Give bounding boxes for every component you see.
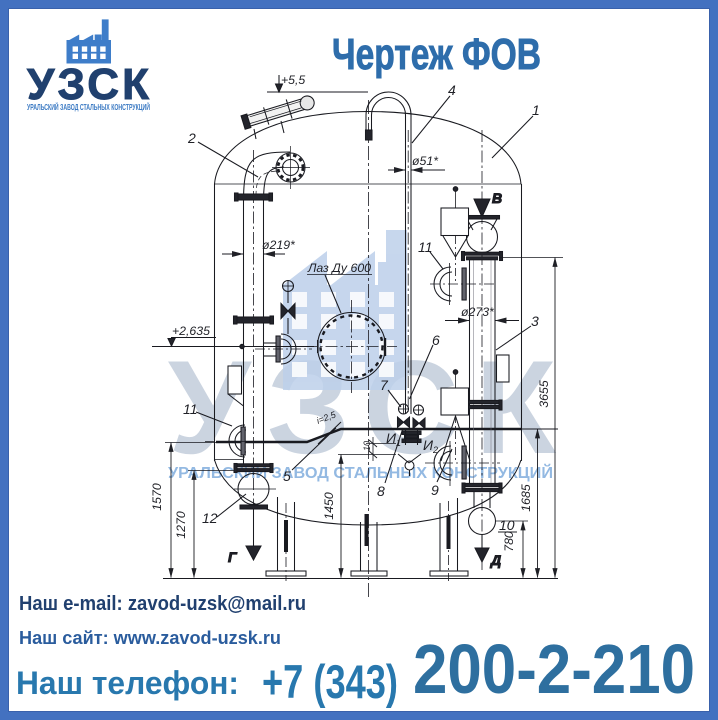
svg-text:9: 9 xyxy=(431,482,439,498)
svg-text:200-2-210: 200-2-210 xyxy=(413,630,695,708)
svg-text:10: 10 xyxy=(362,441,372,451)
svg-text:ø273*: ø273* xyxy=(461,305,495,319)
svg-text:Наш e-mail: zavod-uzsk@mail.ru: Наш e-mail: zavod-uzsk@mail.ru xyxy=(19,593,306,615)
svg-text:7: 7 xyxy=(380,377,389,393)
svg-text:1: 1 xyxy=(532,102,540,118)
svg-text:Д: Д xyxy=(490,552,501,568)
svg-text:1685: 1685 xyxy=(519,484,533,512)
svg-text:УРАЛЬСКИЙ ЗАВОД СТАЛЬНЫХ КОНСТ: УРАЛЬСКИЙ ЗАВОД СТАЛЬНЫХ КОНСТРУКЦИЙ xyxy=(27,101,150,112)
svg-text:ø51*: ø51* xyxy=(412,154,439,168)
svg-text:Г: Г xyxy=(228,549,238,565)
svg-text:3655: 3655 xyxy=(537,380,551,408)
svg-text:6: 6 xyxy=(432,332,440,348)
svg-text:8: 8 xyxy=(377,483,385,499)
svg-text:780: 780 xyxy=(502,531,516,552)
svg-text:1450: 1450 xyxy=(322,492,336,520)
svg-text:1570: 1570 xyxy=(150,483,164,511)
svg-text:2: 2 xyxy=(187,130,196,146)
svg-text:4: 4 xyxy=(448,82,456,98)
svg-text:12: 12 xyxy=(202,510,218,526)
svg-text:10: 10 xyxy=(499,517,515,533)
svg-text:Лаз Ду 600: Лаз Ду 600 xyxy=(307,261,371,275)
svg-text:Чертеж ФОВ: Чертеж ФОВ xyxy=(332,30,541,79)
svg-text:В: В xyxy=(492,190,502,206)
svg-text:11: 11 xyxy=(418,239,433,255)
svg-text:+5,5: +5,5 xyxy=(281,73,305,87)
svg-text:11: 11 xyxy=(183,401,198,417)
svg-text:5: 5 xyxy=(283,468,291,484)
svg-text:Наш сайт: www.zavod-uzsk.ru: Наш сайт: www.zavod-uzsk.ru xyxy=(19,627,281,648)
svg-text:ø219*: ø219* xyxy=(262,238,296,252)
svg-text:1270: 1270 xyxy=(174,511,188,539)
svg-text:+7 (343): +7 (343) xyxy=(262,655,398,708)
svg-text:Наш телефон:: Наш телефон: xyxy=(16,665,239,701)
svg-text:3: 3 xyxy=(531,313,539,329)
svg-text:+2,635: +2,635 xyxy=(172,324,210,338)
